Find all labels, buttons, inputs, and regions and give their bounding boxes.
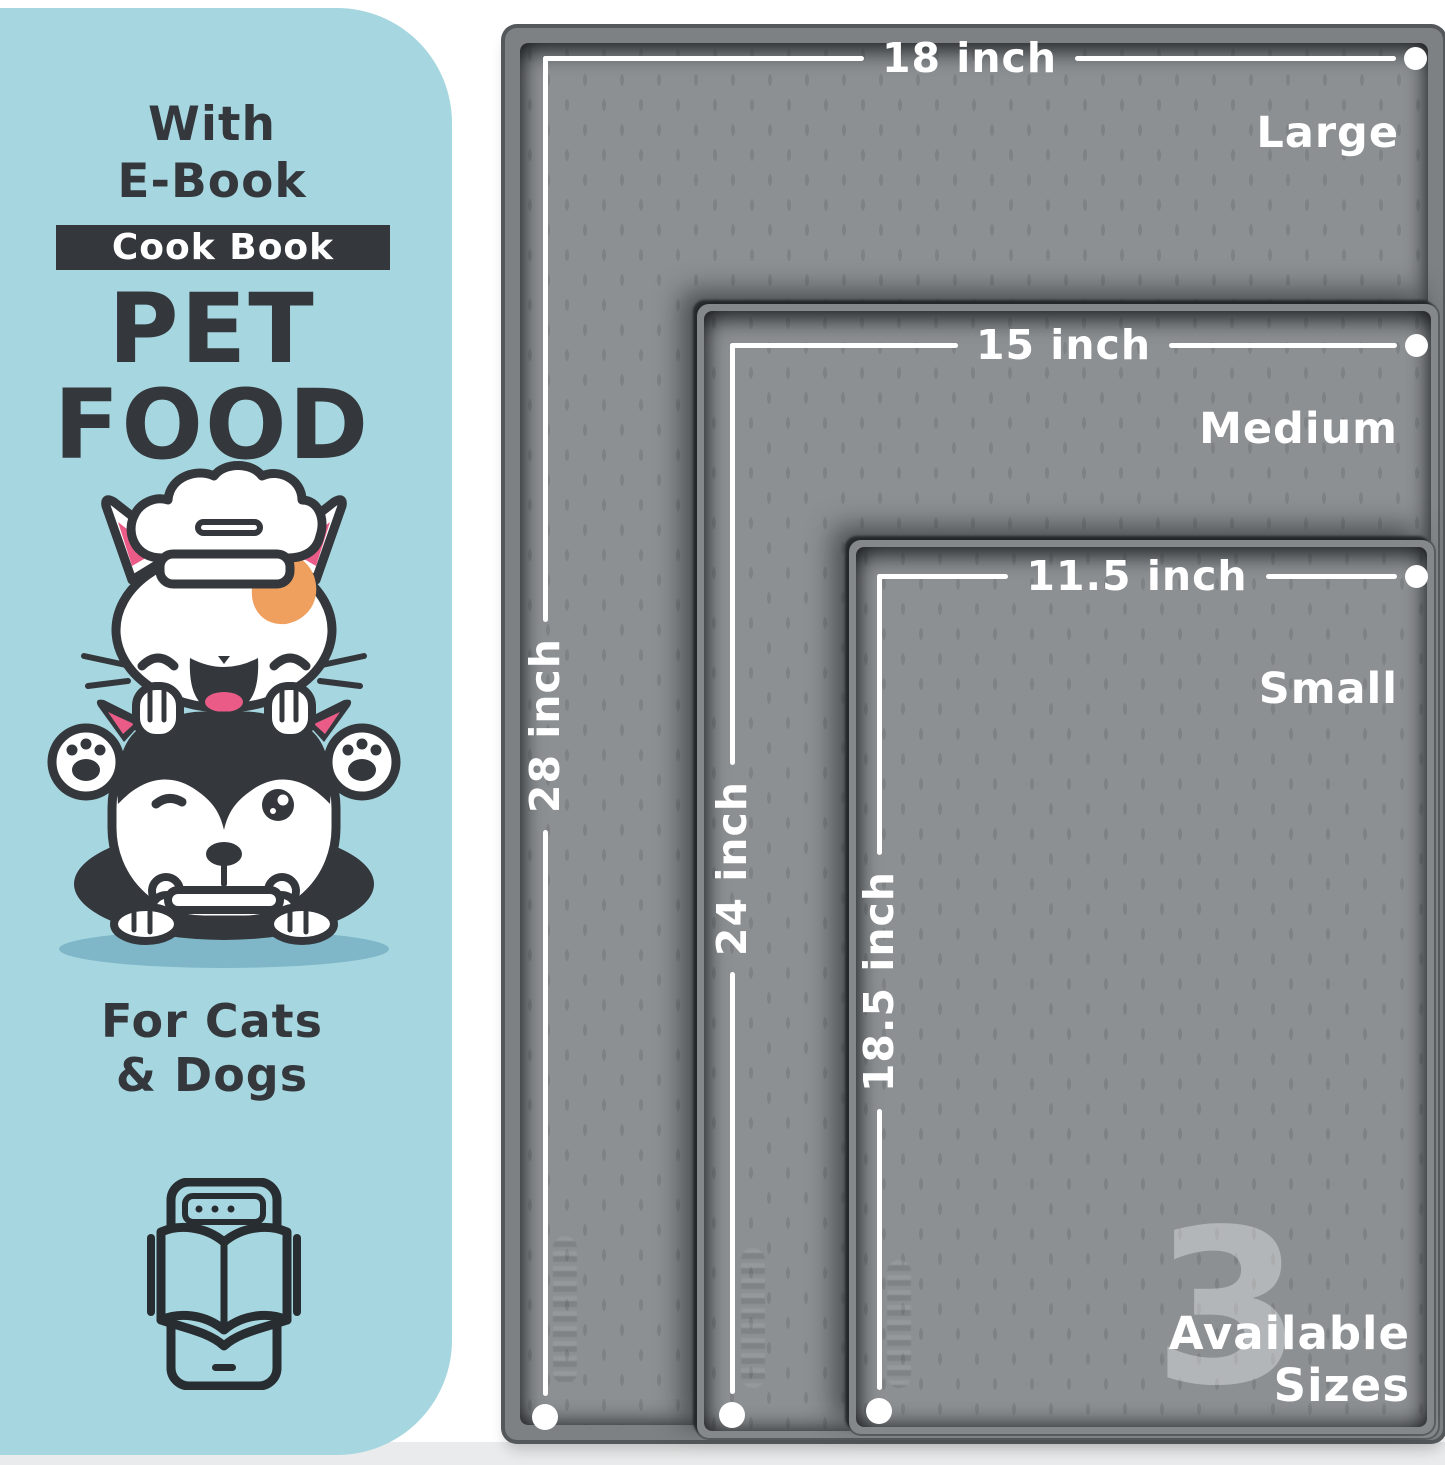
dog-open-eye — [262, 789, 294, 821]
audience-line1: For Cats — [0, 994, 424, 1048]
available-word: Available — [1169, 1308, 1410, 1360]
info-panel: With E-Book Cook Book PET FOOD — [0, 8, 452, 1455]
cookbook-badge: Cook Book — [56, 225, 390, 270]
mat-large-width-label: 18 inch — [882, 34, 1057, 82]
measure-endpoint-dot — [532, 1404, 558, 1430]
mat-small-size-name: Small — [1259, 664, 1398, 714]
measure-endpoint-dot — [1405, 565, 1428, 588]
product-size-infographic: With E-Book Cook Book PET FOOD — [0, 0, 1445, 1465]
dog-paw-raised-left — [52, 728, 120, 796]
mat-large-width-measure: 18 inch — [543, 46, 1427, 70]
mat-medium-height-measure: 24 inch — [718, 343, 746, 1428]
mat-large-size-name: Large — [1256, 108, 1399, 158]
mat-medium-height-label: 24 inch — [708, 781, 756, 956]
home-button — [212, 1364, 236, 1371]
mat-large-height-label: 28 inch — [521, 638, 569, 813]
mat-medium-width-measure: 15 inch — [730, 333, 1428, 357]
dog-figure — [52, 700, 396, 941]
mat-large-height-measure: 28 inch — [531, 56, 559, 1430]
mat-small-height-measure: 18.5 inch — [865, 574, 893, 1424]
mat-small: 11.5 inch 18.5 inch Small 3 Available Si… — [849, 540, 1434, 1434]
sizes-word: Sizes — [1169, 1360, 1410, 1412]
ebook-tablet-icon — [139, 1178, 309, 1390]
cat-figure — [84, 466, 364, 713]
intro-line1: With — [0, 96, 424, 153]
mat-small-width-measure: 11.5 inch — [877, 564, 1428, 588]
cat-tongue — [205, 692, 243, 712]
intro-text: With E-Book — [0, 96, 424, 211]
intro-line2: E-Book — [0, 153, 424, 210]
audience-text: For Cats & Dogs — [0, 994, 424, 1103]
available-sizes-text: Available Sizes — [1169, 1308, 1410, 1412]
mat-small-height-label: 18.5 inch — [855, 871, 903, 1092]
cat-and-dog-chef-illustration — [28, 460, 420, 975]
chef-hat — [131, 466, 322, 585]
mat-medium-size-name: Medium — [1199, 404, 1398, 454]
product-title-line1: PET — [0, 281, 424, 377]
measure-endpoint-dot — [1404, 47, 1427, 70]
measure-endpoint-dot — [866, 1398, 892, 1424]
mat-medium-width-label: 15 inch — [976, 321, 1151, 369]
measure-endpoint-dot — [719, 1402, 745, 1428]
dog-paw-raised-right — [328, 728, 396, 796]
mat-small-width-label: 11.5 inch — [1026, 552, 1247, 600]
audience-line2: & Dogs — [0, 1048, 424, 1102]
measure-endpoint-dot — [1405, 334, 1428, 357]
product-title-line2: FOOD — [0, 377, 424, 473]
